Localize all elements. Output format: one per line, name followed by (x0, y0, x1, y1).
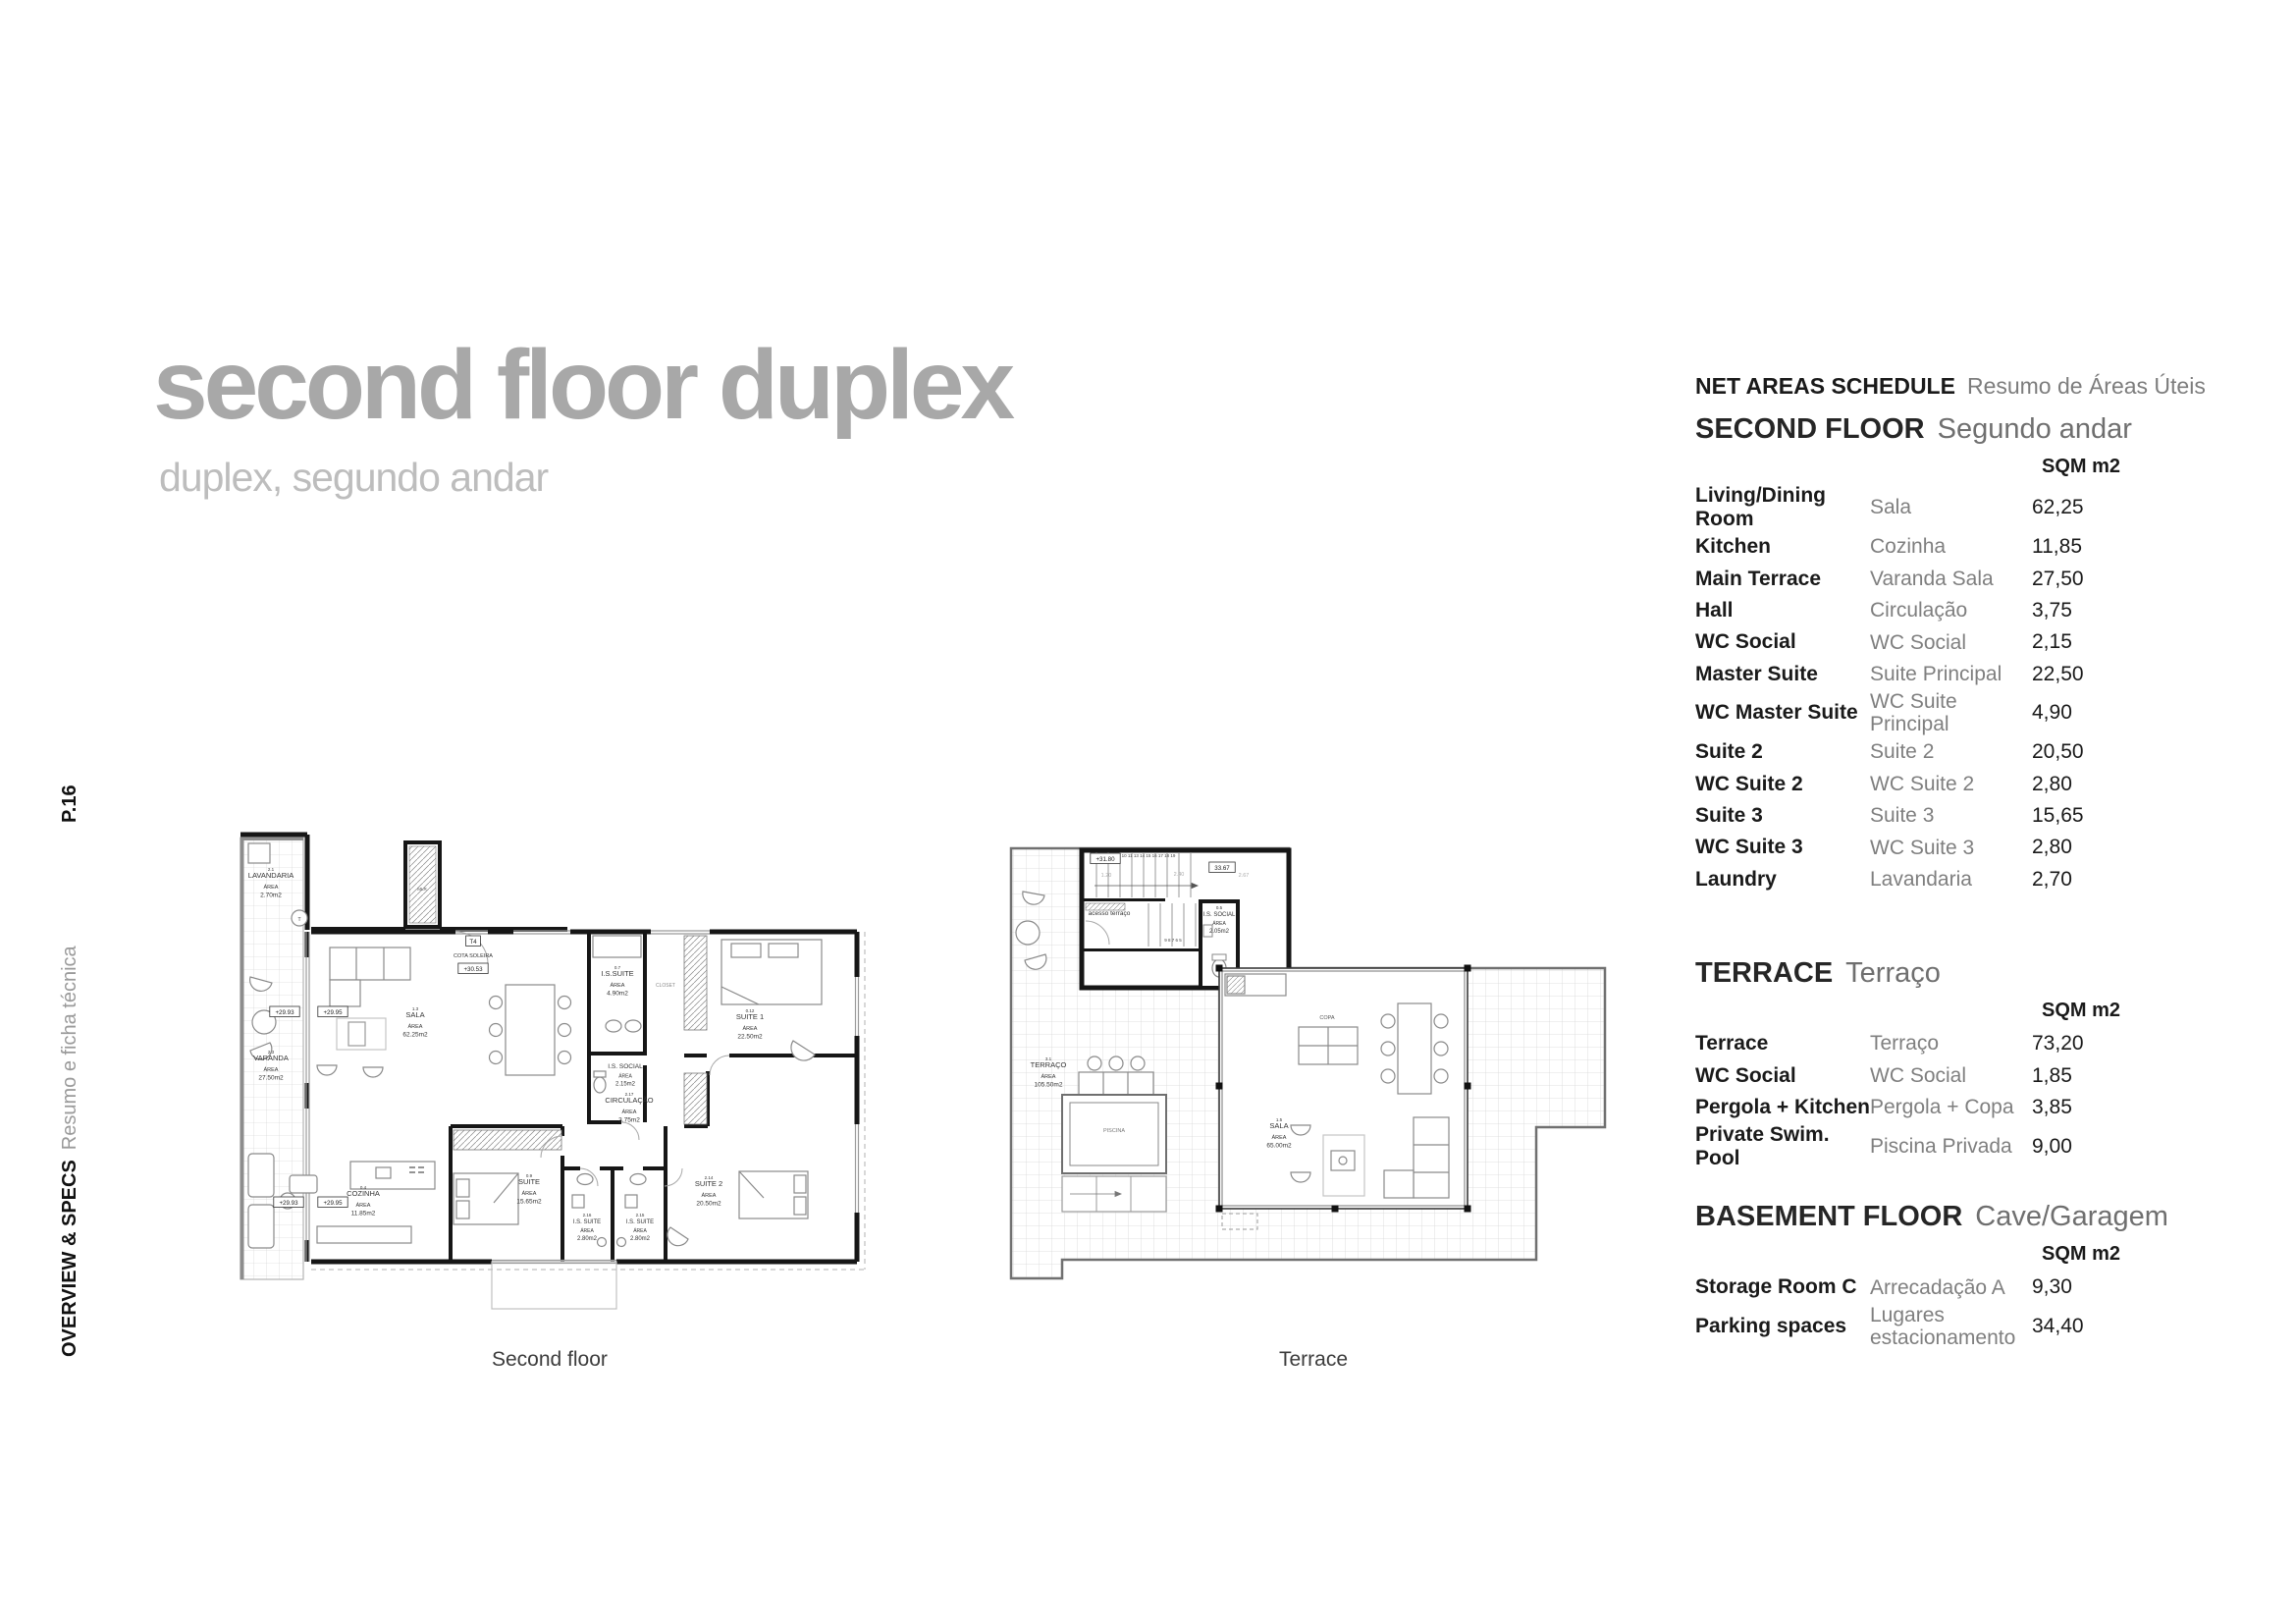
room-name-pt: Pergola + Copa (1870, 1096, 2032, 1119)
room-name-en: Master Suite (1695, 663, 1870, 686)
room-label: CLOSET (656, 983, 675, 989)
room-label: SALA (405, 1010, 424, 1019)
page-subtitle: duplex, segundo andar (159, 458, 548, 498)
room-name-pt: Cozinha (1870, 535, 2032, 559)
schedule-section-heading: BASEMENT FLOORCave/Garagem (1695, 1200, 2137, 1233)
room-label: VARANDA (253, 1054, 289, 1062)
room-label: ÁREA (356, 1202, 371, 1209)
room-name-en: Living/Dining Room (1695, 484, 1870, 531)
room-label: I.S.SUITE (601, 969, 633, 978)
room-area-sqm: 62,25 (2032, 496, 2137, 519)
schedule-section-heading: TERRACETerraço (1695, 956, 2137, 990)
room-label: COZINHA (347, 1189, 380, 1198)
unit-header: SQM m2 (2042, 1242, 2137, 1266)
room-name-pt: Varanda Sala (1870, 568, 2032, 591)
room-label: 2.40 (1174, 872, 1185, 878)
room-label: 20.50m2 (696, 1200, 721, 1207)
dining-table (1398, 1003, 1431, 1094)
room-label: COPA (1319, 1015, 1335, 1021)
room-label: ÁREA (1272, 1134, 1287, 1141)
room-label: ÁREA (618, 1073, 632, 1080)
page-number: P.16 (59, 785, 80, 823)
room-label: SUITE (518, 1177, 540, 1186)
room-name-pt: Sala (1870, 496, 2032, 519)
plan-caption-second-floor: Second floor (492, 1349, 608, 1370)
room-area-sqm: 2,80 (2032, 836, 2137, 859)
room-name-en: Main Terrace (1695, 568, 1870, 591)
room-area-sqm: 20,50 (2032, 740, 2137, 764)
schedule-row: Private Swim. PoolPiscina Privada9,00 (1695, 1123, 2137, 1170)
schedule-header-pt: Resumo de Áreas Úteis (1967, 373, 2206, 399)
room-label: ÁREA (622, 1109, 637, 1115)
room-name-pt: Lugares estacionamento (1870, 1304, 2032, 1350)
room-name-en: Terrace (1695, 1032, 1870, 1056)
room-area-sqm: 34,40 (2032, 1315, 2137, 1338)
elevation-value: +29.93 (279, 1200, 298, 1207)
sun-lounger (290, 1175, 317, 1193)
room-label: 15.65m2 (516, 1198, 542, 1205)
schedule-section-heading: SECOND FLOORSegundo andar (1695, 412, 2137, 446)
dining-table (506, 985, 555, 1075)
stair-block (1082, 848, 1289, 988)
room-name-pt: Terraço (1870, 1032, 2032, 1056)
schedule-row: Main TerraceVaranda Sala27,50 (1695, 563, 2137, 594)
pool (1062, 1095, 1166, 1212)
sofa (1414, 1117, 1449, 1198)
room-label: I.S. SUITE (573, 1219, 601, 1225)
elevation-value: +31.80 (1095, 856, 1115, 863)
wardrobes (409, 846, 707, 1150)
room-name-pt: Piscina Privada (1870, 1135, 2032, 1159)
room-name-en: Private Swim. Pool (1695, 1123, 1870, 1170)
armchair (317, 1065, 337, 1075)
room-label: 0.5 (1216, 905, 1223, 910)
room-label: SUITE 2 (695, 1179, 722, 1188)
room-label: CIRCULAÇÃO (605, 1096, 653, 1105)
section-name-pt: Segundo andar (1938, 413, 2132, 445)
net-areas-schedule: NET AREAS SCHEDULEResumo de Áreas Úteis … (1695, 373, 2137, 1350)
room-label: 11.85m2 (351, 1210, 376, 1217)
schedule-row: Storage Room CArrecadação A9,30 (1695, 1272, 2137, 1303)
room-label: SUITE 1 (736, 1012, 764, 1021)
room-area-sqm: 9,00 (2032, 1135, 2137, 1159)
room-label: 22.50m2 (737, 1033, 763, 1040)
schedule-header: NET AREAS SCHEDULEResumo de Áreas Úteis (1695, 373, 2137, 399)
room-label: ÁREA (1041, 1073, 1056, 1080)
elevation-value: T4 (469, 939, 477, 946)
schedule-row: Parking spacesLugares estacionamento34,4… (1695, 1304, 2137, 1350)
room-label: 62.25m2 (402, 1031, 428, 1038)
elevation-value: +29.95 (323, 1009, 343, 1016)
schedule-row: Pergola + KitchenPergola + Copa3,85 (1695, 1092, 2137, 1123)
room-name-en: Hall (1695, 599, 1870, 623)
room-label: I.S. SUITE (626, 1219, 654, 1225)
furniture (248, 843, 822, 1248)
room-label: LAVANDARIA (248, 871, 294, 880)
room-label: 9 8 7 6 5 (1164, 938, 1182, 943)
room-name-en: WC Suite 3 (1695, 836, 1870, 859)
room-label: ÁREA (522, 1190, 537, 1197)
schedule-row: WC Suite 2WC Suite 22,80 (1695, 768, 2137, 799)
room-area-sqm: 3,85 (2032, 1096, 2137, 1119)
unit-header: SQM m2 (2042, 455, 2137, 478)
room-label: ÁREA (1212, 920, 1226, 927)
schedule-row: Suite 3Suite 315,65 (1695, 800, 2137, 832)
room-label: TERRAÇO (1031, 1060, 1067, 1069)
schedule-row: Suite 2Suite 220,50 (1695, 736, 2137, 768)
floor-plan-second-floor: 2.1LAVANDARIAÁREA2.70m22.3VARANDAÁREA27.… (229, 830, 867, 1326)
elevation-value: 33.67 (1214, 865, 1230, 872)
section-name-pt: Cave/Garagem (1975, 1201, 2168, 1232)
sofa (330, 947, 410, 980)
room-area-sqm: 2,80 (2032, 773, 2137, 796)
floor-plan-terrace: +31.8033.671.202.402.6710 11 13 14 15 16… (1001, 831, 1639, 1292)
room-label: ÁREA (702, 1192, 717, 1199)
room-label: 2.16 (583, 1213, 592, 1218)
schedule-rows: Living/Dining RoomSala62,25KitchenCozinh… (1695, 484, 2137, 895)
room-label: SALA (1269, 1121, 1288, 1130)
room-name-en: Suite 3 (1695, 804, 1870, 828)
room-label: 2.05m2 (1209, 929, 1230, 935)
schedule-rows: Storage Room CArrecadação A9,30Parking s… (1695, 1272, 2137, 1349)
room-label: ÁREA (633, 1227, 647, 1234)
room-area-sqm: 4,90 (2032, 701, 2137, 725)
room-area-sqm: 22,50 (2032, 663, 2137, 686)
room-area-sqm: 27,50 (2032, 568, 2137, 591)
schedule-row: KitchenCozinha11,85 (1695, 531, 2137, 563)
section-name-en: TERRACE (1695, 957, 1833, 989)
room-label: ÁREA (580, 1227, 594, 1234)
room-name-en: WC Master Suite (1695, 701, 1870, 725)
room-name-pt: WC Suite 2 (1870, 773, 2032, 796)
room-label: 2.80m2 (630, 1236, 651, 1242)
schedule-row: LaundryLavandaria2,70 (1695, 864, 2137, 895)
room-label: ÁREA (743, 1025, 758, 1032)
bathtub (593, 936, 641, 957)
room-name-pt: Circulação (1870, 599, 2032, 623)
room-name-pt: WC Social (1870, 1064, 2032, 1088)
room-area-sqm: 2,70 (2032, 868, 2137, 892)
elevation-value: +29.95 (323, 1200, 343, 1207)
room-name-en: Storage Room C (1695, 1275, 1870, 1299)
schedule-row: Living/Dining RoomSala62,25 (1695, 484, 2137, 531)
brochure-page: { "colors":{"title_gray":"#a8a8a8","subt… (0, 0, 2296, 1624)
room-name-pt: Suite 2 (1870, 740, 2032, 764)
porch (492, 1262, 616, 1309)
unit-header: SQM m2 (2042, 999, 2137, 1022)
room-label: 2.15m2 (615, 1081, 636, 1087)
schedule-sections: SECOND FLOORSegundo andarSQM m2Living/Di… (1695, 412, 2137, 1350)
schedule-rows: TerraceTerraço73,20WC SocialWC Social1,8… (1695, 1028, 2137, 1170)
room-label: MLR (417, 887, 427, 892)
room-name-pt: Suite Principal (1870, 663, 2032, 686)
room-label: 10 11 13 14 15 16 17 18 19 (1122, 853, 1176, 858)
room-label: 2.70m2 (260, 892, 282, 898)
room-name-pt: WC Social (1870, 631, 2032, 655)
room-name-en: WC Social (1695, 1064, 1870, 1088)
plan-caption-terrace: Terrace (1279, 1349, 1348, 1370)
room-label: PISCINA (1103, 1128, 1125, 1134)
room-label: 105.50m2 (1035, 1081, 1063, 1088)
section-name-pt: Terraço (1845, 957, 1941, 989)
room-label: ÁREA (264, 884, 279, 891)
room-name-pt: Suite 3 (1870, 804, 2032, 828)
room-name-en: Kitchen (1695, 535, 1870, 559)
room-label: T (297, 917, 300, 923)
page-title: second floor duplex (153, 336, 1011, 434)
room-label: COTA SOLEIRA (454, 953, 493, 959)
schedule-row: WC SocialWC Social2,15 (1695, 626, 2137, 658)
room-name-pt: Lavandaria (1870, 868, 2032, 892)
room-label: 2.15 (636, 1213, 645, 1218)
schedule-row: WC Suite 3WC Suite 32,80 (1695, 832, 2137, 863)
room-label: 2.67 (1239, 873, 1250, 879)
elevation-value: +30.53 (463, 966, 483, 973)
room-label: ÁREA (264, 1066, 279, 1073)
room-label: ÁREA (408, 1023, 423, 1030)
room-label: 2.80m2 (577, 1236, 598, 1242)
room-label: acesso terraço (1089, 910, 1131, 917)
room-name-en: WC Suite 2 (1695, 773, 1870, 796)
room-label: 27.50m2 (258, 1074, 284, 1081)
schedule-header-en: NET AREAS SCHEDULE (1695, 373, 1955, 399)
sidebar-section-label: OVERVIEW & SPECSResumo e ficha técnica (59, 946, 80, 1357)
room-name-en: Pergola + Kitchen (1695, 1096, 1870, 1119)
schedule-row: WC SocialWC Social1,85 (1695, 1059, 2137, 1091)
room-area-sqm: 73,20 (2032, 1032, 2137, 1056)
room-name-pt: WC Suite Principal (1870, 690, 2032, 736)
room-label: 3.75m2 (618, 1116, 640, 1123)
schedule-row: TerraceTerraço73,20 (1695, 1028, 2137, 1059)
room-label: I.S. SOCIAL (608, 1063, 643, 1070)
sidebar-section-en: OVERVIEW & SPECS (59, 1160, 80, 1357)
room-area-sqm: 15,65 (2032, 804, 2137, 828)
room-label: 1.20 (1101, 873, 1112, 879)
room-name-en: Suite 2 (1695, 740, 1870, 764)
room-label: 65.00m2 (1266, 1142, 1292, 1149)
elevation-value: +29.93 (275, 1009, 294, 1016)
room-label: ÁREA (611, 982, 625, 989)
room-area-sqm: 1,85 (2032, 1064, 2137, 1088)
section-name-en: BASEMENT FLOOR (1695, 1201, 1962, 1232)
toilet (594, 1077, 606, 1093)
section-name-en: SECOND FLOOR (1695, 413, 1925, 445)
room-area-sqm: 11,85 (2032, 535, 2137, 559)
room-area-sqm: 2,15 (2032, 630, 2137, 654)
room-name-en: Laundry (1695, 868, 1870, 892)
room-name-pt: WC Suite 3 (1870, 837, 2032, 860)
room-area-sqm: 3,75 (2032, 599, 2137, 623)
schedule-row: Master SuiteSuite Principal22,50 (1695, 659, 2137, 690)
room-label: I.S. SOCIAL (1203, 912, 1236, 918)
sidebar-section-pt: Resumo e ficha técnica (59, 946, 80, 1150)
schedule-row: WC Master SuiteWC Suite Principal4,90 (1695, 690, 2137, 736)
room-label: 4.90m2 (607, 990, 628, 997)
room-name-pt: Arrecadação A (1870, 1276, 2032, 1300)
room-name-en: Parking spaces (1695, 1315, 1870, 1338)
schedule-row: HallCirculação3,75 (1695, 595, 2137, 626)
room-area-sqm: 9,30 (2032, 1275, 2137, 1299)
room-name-en: WC Social (1695, 630, 1870, 654)
